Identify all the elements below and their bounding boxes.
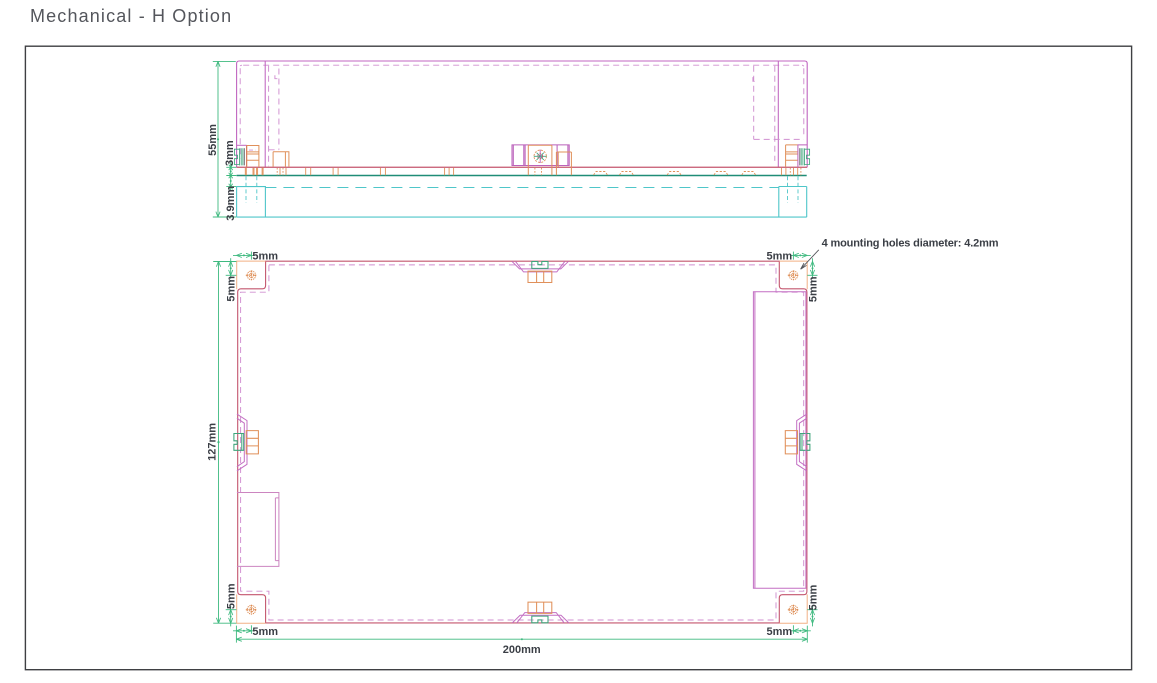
svg-text:5mm: 5mm <box>252 626 278 638</box>
svg-text:5mm: 5mm <box>252 251 278 263</box>
svg-text:5mm: 5mm <box>767 626 793 638</box>
svg-text:5mm: 5mm <box>226 583 238 609</box>
svg-text:3mm: 3mm <box>224 140 236 166</box>
svg-text:5mm: 5mm <box>807 584 819 610</box>
svg-text:127mm: 127mm <box>207 423 219 461</box>
svg-text:5mm: 5mm <box>226 276 238 302</box>
svg-text:5mm: 5mm <box>767 251 793 263</box>
svg-text:4 mounting holes diameter: 4.2: 4 mounting holes diameter: 4.2mm <box>822 237 999 249</box>
svg-text:5mm: 5mm <box>807 276 819 302</box>
svg-text:3.9mm: 3.9mm <box>225 186 237 221</box>
svg-text:200mm: 200mm <box>503 644 541 656</box>
svg-text:55mm: 55mm <box>207 124 219 156</box>
